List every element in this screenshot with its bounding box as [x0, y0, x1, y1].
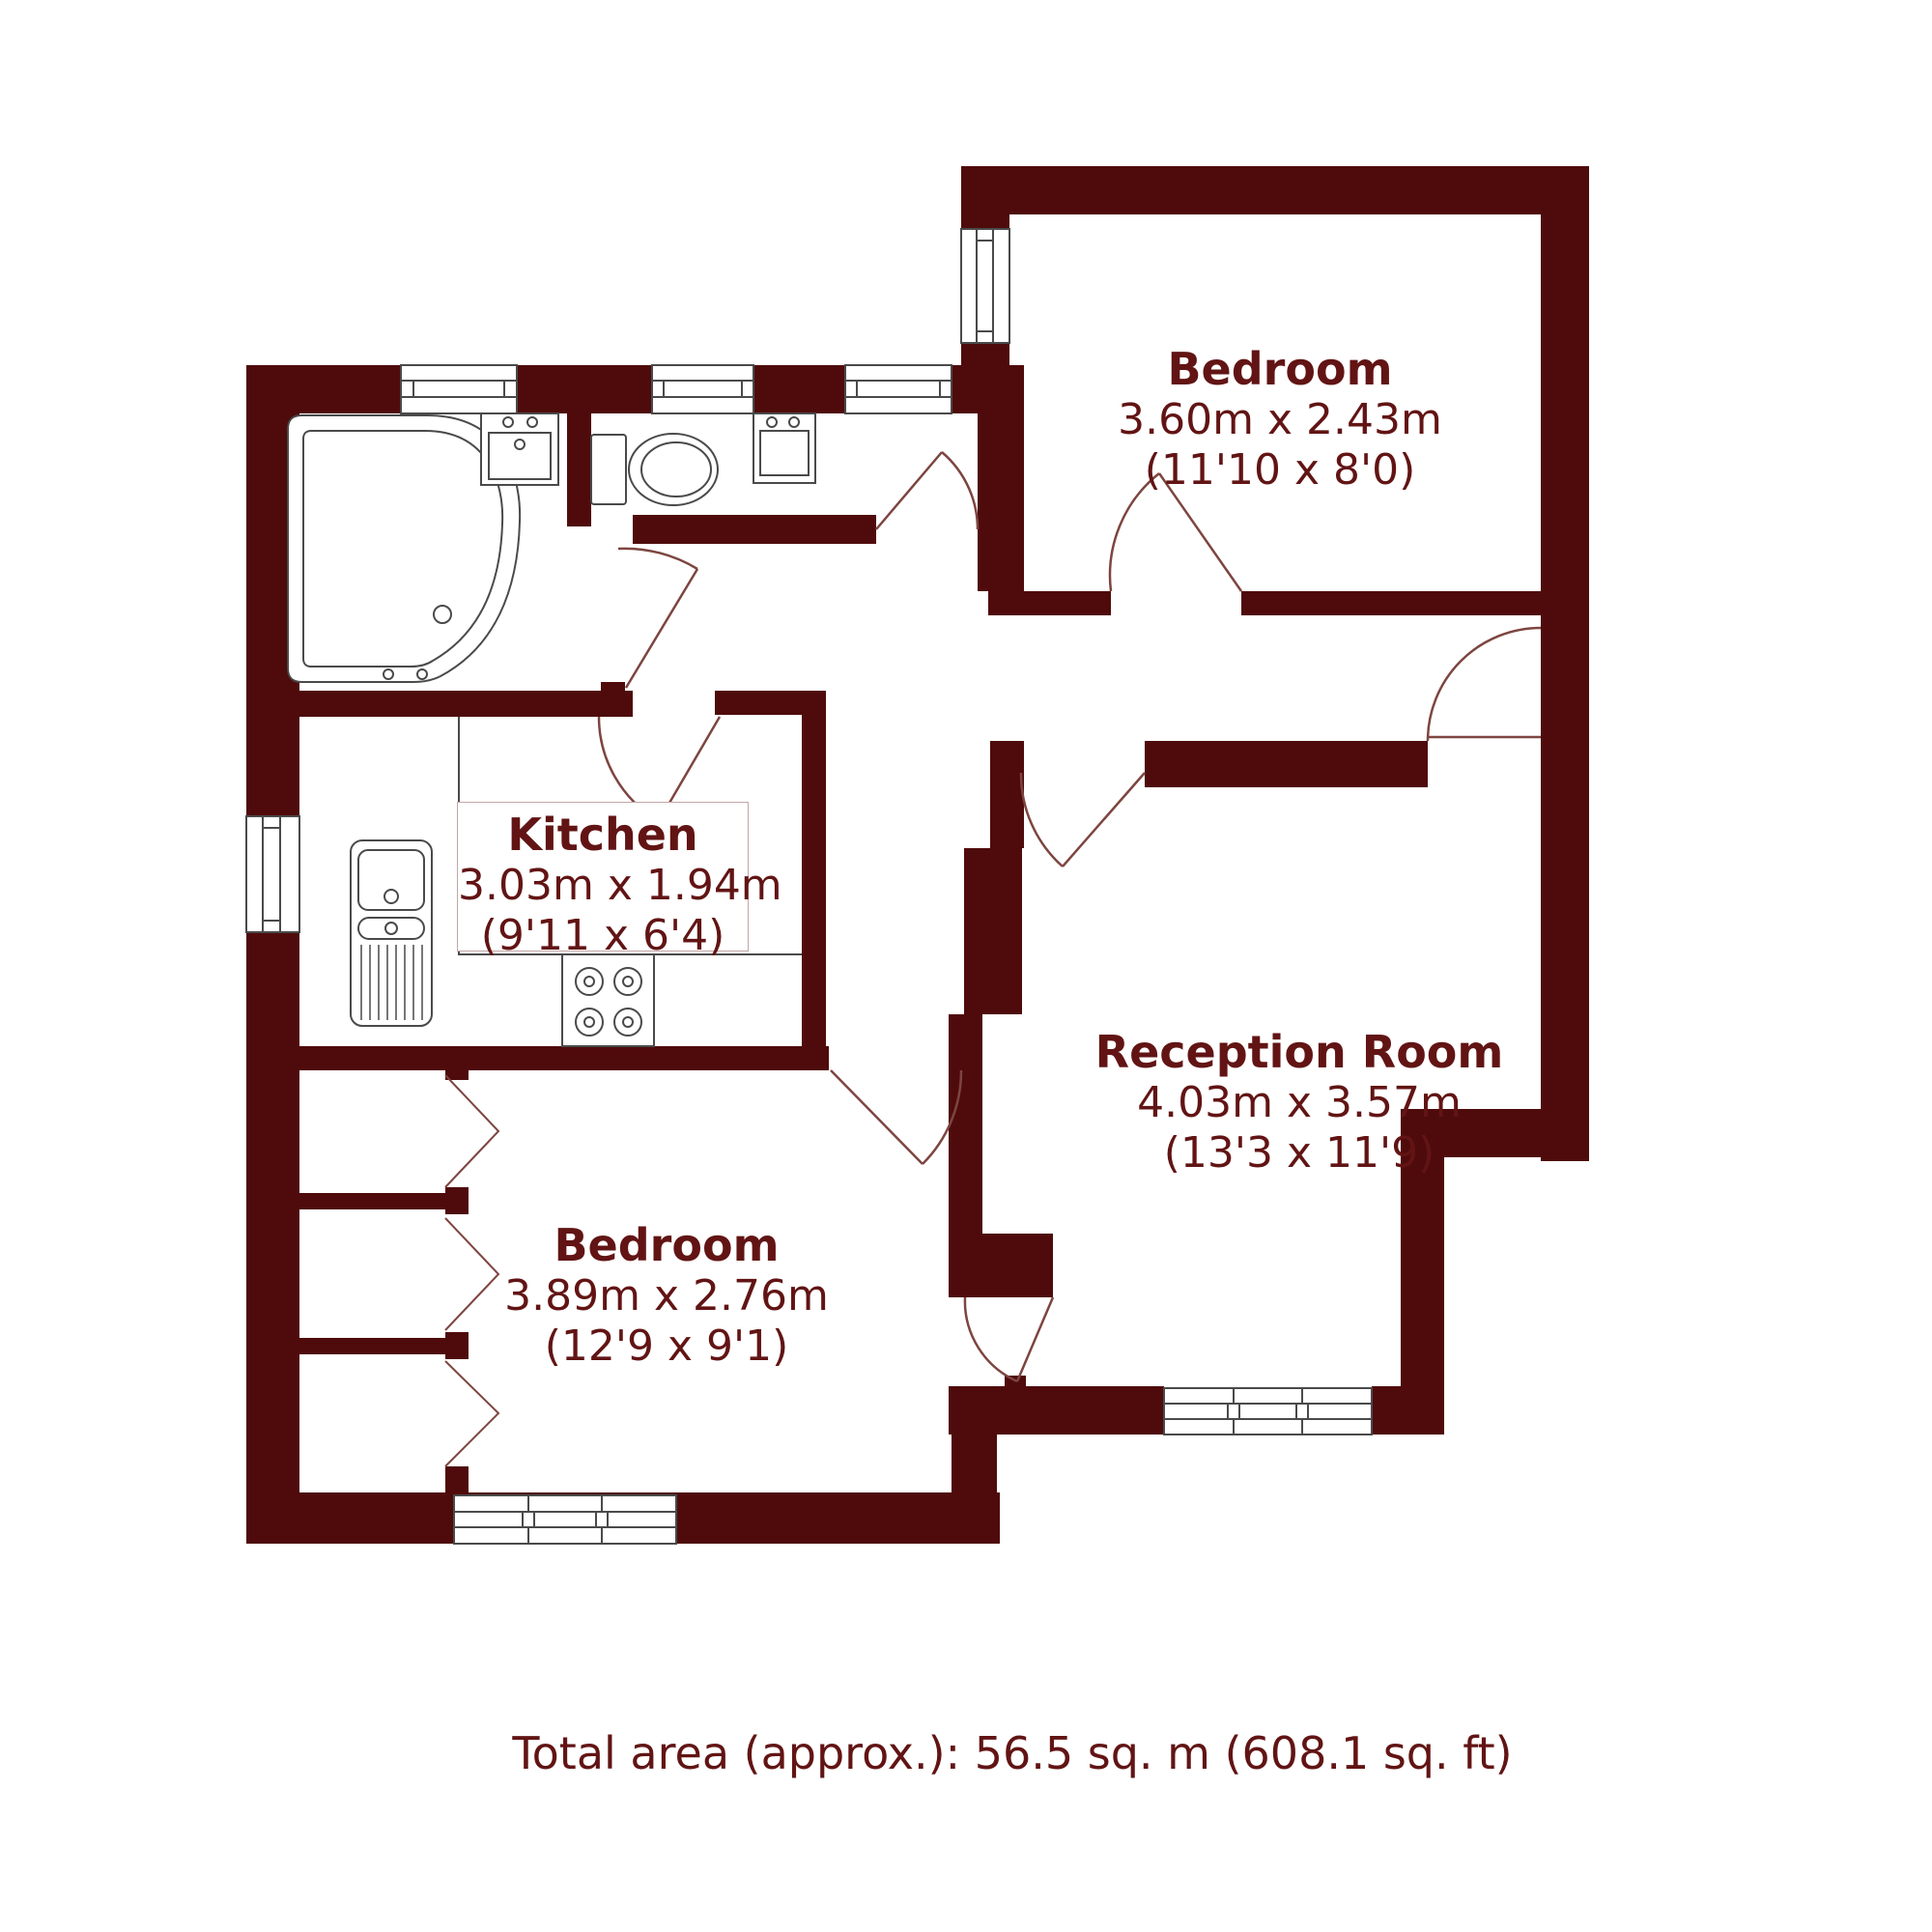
wall: [246, 691, 633, 717]
room-dims-metric: 3.03m x 1.94m: [458, 861, 748, 911]
bathroom-sink: [481, 413, 558, 485]
wall: [978, 413, 1024, 591]
door-wc: [876, 452, 978, 529]
room-dims-imperial: (9'11 x 6'4): [458, 911, 748, 961]
closet-wall: [299, 1338, 445, 1354]
wall: [567, 413, 591, 526]
wall: [964, 848, 1022, 1014]
toilet: [591, 434, 718, 505]
wall: [633, 515, 876, 544]
room-dims-metric: 3.89m x 2.76m: [504, 1271, 829, 1321]
door-bathroom: [618, 549, 697, 688]
wall: [715, 691, 826, 715]
wall: [949, 1234, 1053, 1297]
window: [401, 365, 517, 413]
kitchen-sink-unit: [351, 840, 432, 1026]
stove: [562, 954, 654, 1046]
wall: [1401, 1157, 1444, 1389]
closet-doors: [445, 1075, 498, 1466]
wall: [949, 1014, 982, 1234]
floorplan-drawing: [0, 0, 1932, 1932]
wall: [601, 682, 625, 691]
closet-wall: [445, 1187, 469, 1214]
closet-door: [445, 1218, 498, 1330]
wall: [990, 741, 1024, 848]
room-dims-imperial: (13'3 x 11'9): [1095, 1128, 1504, 1179]
room-name: Bedroom: [1118, 343, 1442, 395]
kitchen-label-box: Kitchen 3.03m x 1.94m (9'11 x 6'4): [457, 802, 749, 952]
window: [1164, 1388, 1372, 1435]
wall: [1541, 214, 1589, 1161]
wc-sink: [753, 413, 815, 483]
wall: [246, 1046, 829, 1070]
room-label-bedroom-left: Bedroom 3.89m x 2.76m (12'9 x 9'1): [504, 1219, 829, 1372]
door-reception-lower: [965, 1297, 1053, 1381]
room-label-reception: Reception Room 4.03m x 3.57m (13'3 x 11'…: [1095, 1026, 1504, 1179]
wall: [961, 166, 1589, 214]
wall: [949, 1386, 1164, 1435]
closet-door: [445, 1361, 498, 1466]
window: [652, 365, 753, 413]
wall: [802, 715, 826, 1046]
window: [845, 365, 952, 413]
closet-door: [445, 1075, 498, 1187]
door-hall-reception-right: [1428, 628, 1541, 741]
room-dims-metric: 3.60m x 2.43m: [1118, 395, 1442, 445]
window: [454, 1495, 676, 1544]
closet-wall: [299, 1193, 445, 1209]
room-label-kitchen: Kitchen 3.03m x 1.94m (9'11 x 6'4): [458, 809, 748, 961]
wall: [1372, 1386, 1444, 1435]
room-name: Reception Room: [1095, 1026, 1504, 1078]
wall: [1145, 741, 1428, 787]
floorplan-canvas: Bedroom 3.60m x 2.43m (11'10 x 8'0) Kitc…: [0, 0, 1932, 1932]
wall: [988, 591, 1111, 615]
room-name: Kitchen: [458, 809, 748, 861]
room-name: Bedroom: [504, 1219, 829, 1271]
room-dims-imperial: (11'10 x 8'0): [1118, 445, 1442, 496]
window: [961, 229, 1009, 343]
room-dims-metric: 4.03m x 3.57m: [1095, 1078, 1504, 1128]
window: [246, 816, 299, 932]
total-area-label: Total area (approx.): 56.5 sq. m (608.1 …: [512, 1727, 1512, 1779]
closet-wall: [445, 1466, 469, 1492]
room-label-bedroom-top: Bedroom 3.60m x 2.43m (11'10 x 8'0): [1118, 343, 1442, 496]
door-reception-left: [1021, 773, 1145, 867]
closet-wall: [445, 1332, 469, 1359]
door-bedroom-left: [831, 1070, 961, 1164]
room-dims-imperial: (12'9 x 9'1): [504, 1321, 829, 1372]
wall: [1241, 591, 1541, 615]
